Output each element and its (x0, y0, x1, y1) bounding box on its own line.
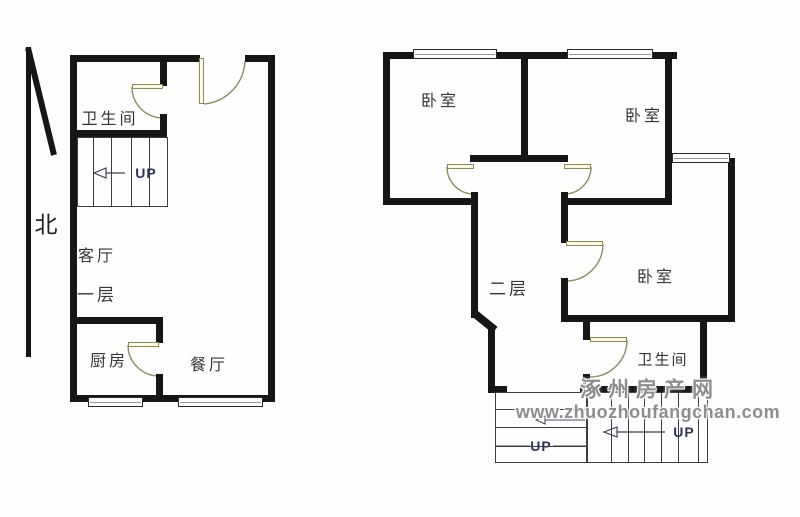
door-leaf-1f-kitchen (128, 342, 159, 347)
wall-2f-lower-left (488, 326, 495, 393)
stair-tread (93, 138, 94, 206)
stair-tread (131, 138, 132, 206)
door-arc-2f-bedroom-left (447, 167, 474, 194)
label-1f-living-room: 客厅 (78, 249, 116, 265)
wall-2f-left (383, 52, 390, 205)
label-2f-bedroom-top-right: 卧室 (625, 109, 663, 125)
label-2f-bathroom: 卫生间 (637, 353, 688, 368)
floorplan-canvas: 卫生间 客厅 一层 厨房 餐厅 UP 北 (0, 0, 800, 517)
wall-2f-bedroomR-bottom (561, 198, 672, 205)
wall-1f-left (70, 55, 77, 402)
label-second-floor: 二层 (489, 281, 529, 298)
wall-1f-kitchen-right-upper (156, 317, 163, 343)
wall-2f-bedroomR-right (665, 52, 672, 205)
door-arc-2f-bedroom-right (564, 167, 591, 194)
wall-1f-bathroom-right-upper (160, 62, 167, 86)
wall-2f-bathroom-left-upper (583, 315, 590, 340)
label-1f-bathroom: 卫生间 (81, 112, 138, 128)
wall-1f-kitchen-right-lower (156, 374, 163, 395)
watermark-site-url: www.zhuozhoufangchan.com (516, 403, 780, 421)
door-arc-2f-bedroom-middle (566, 244, 603, 281)
door-leaf-2f-bedroom-right (564, 164, 591, 169)
wall-1f-right (268, 55, 275, 402)
label-1f-dining-room: 餐厅 (190, 358, 228, 374)
wall-1f-bathroom-bottom (70, 130, 167, 137)
wall-2f-corridor-top (470, 155, 568, 162)
window-1f-dining (178, 397, 263, 407)
window-2f-bedroomR (567, 49, 653, 59)
label-1f-kitchen: 厨房 (90, 354, 128, 370)
wall-2f-divider (521, 52, 528, 159)
wall-2f-bedroomL-bottom (383, 198, 477, 205)
watermark-site-name: 涿州房产网 (580, 380, 720, 401)
label-first-floor: 一层 (77, 287, 117, 304)
wall-2f-corridor-left (471, 192, 478, 318)
door-arc-entrance (204, 61, 245, 104)
window-2f-bedroomL (413, 49, 497, 59)
stair-tread (496, 427, 586, 428)
door-arc-1f-kitchen (128, 345, 159, 376)
label-2f-up-left: UP (530, 439, 551, 453)
door-arc-2f-bathroom (590, 340, 627, 377)
label-1f-up: UP (135, 166, 156, 180)
stair-tread (111, 138, 112, 206)
label-2f-bedroom-top-left: 卧室 (421, 94, 459, 110)
door-leaf-2f-bathroom (590, 337, 627, 342)
door-leaf-1f-bathroom (132, 84, 163, 89)
label-2f-bedroom-middle: 卧室 (637, 270, 675, 286)
door-leaf-entrance (199, 58, 204, 104)
label-north: 北 (35, 214, 58, 237)
north-arrow-head (28, 48, 54, 155)
window-2f-bedroomM (672, 153, 730, 163)
wall-1f-kitchen-top (70, 317, 163, 324)
wall-1f-top-left (70, 55, 200, 62)
door-leaf-2f-bedroom-left (447, 164, 474, 169)
window-1f-kitchen (88, 397, 143, 407)
wall-2f-outer-right (728, 158, 735, 322)
door-leaf-2f-bedroom-middle (566, 241, 603, 246)
label-2f-up-right: UP (673, 425, 694, 439)
wall-1f-bathroom-right-lower (160, 114, 167, 137)
